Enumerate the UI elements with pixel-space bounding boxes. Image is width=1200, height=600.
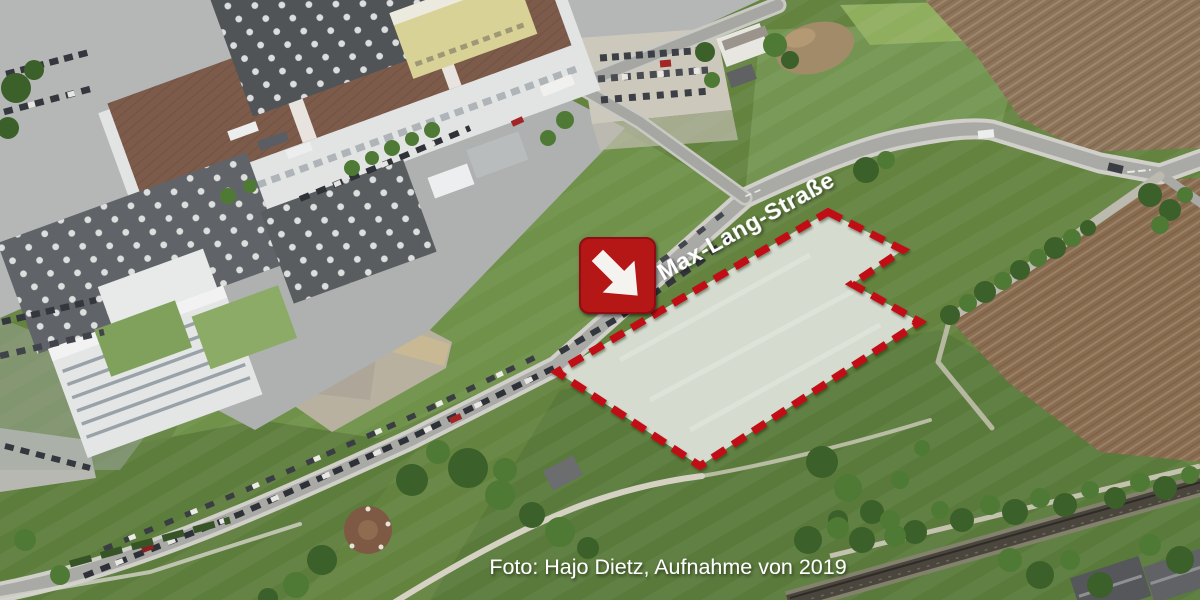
photo-credit: Foto: Hajo Dietz, Aufnahme von 2019 [489, 555, 846, 579]
site-marker-arrow-icon [580, 238, 655, 313]
aerial-photo: Max-Lang-Straße Foto: Hajo Dietz, Aufnah… [0, 0, 1200, 600]
